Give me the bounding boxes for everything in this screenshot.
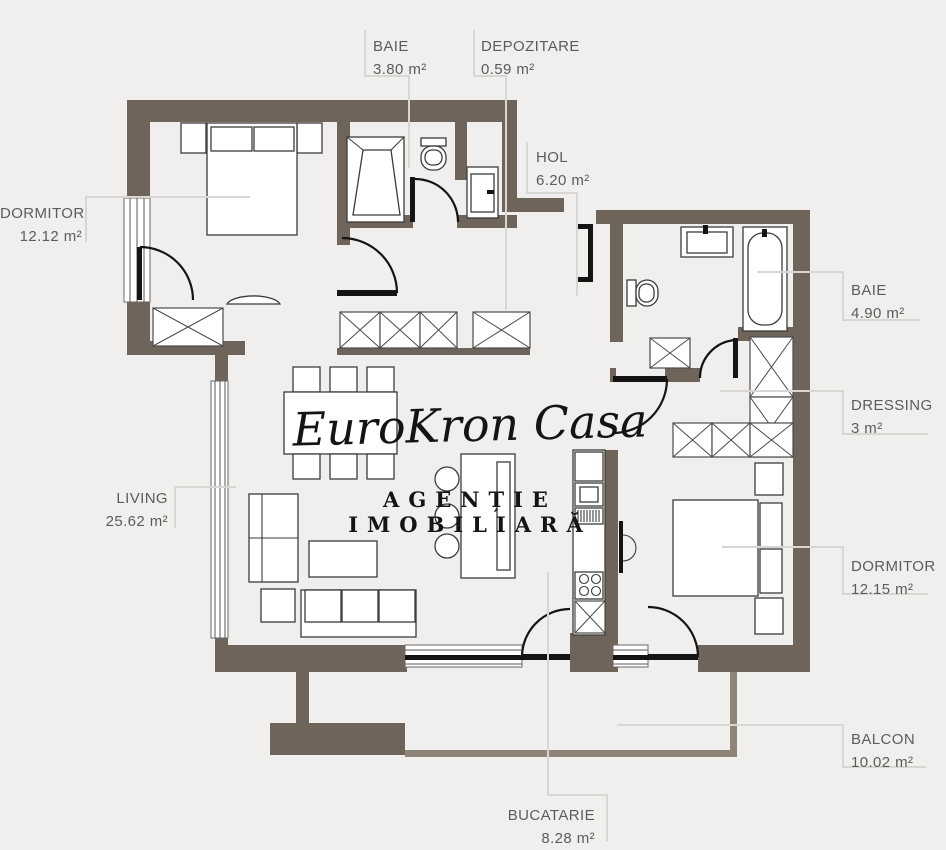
bedroom-right-furniture	[619, 463, 783, 634]
room-area: 3 m²	[851, 418, 933, 441]
room-name: BUCATARIE	[445, 805, 595, 828]
room-name: DRESSING	[851, 395, 933, 418]
room-label-baie-top: BAIE 3.80 m²	[373, 36, 427, 81]
room-name: HOL	[536, 147, 590, 170]
room-name: DORMITOR	[851, 556, 936, 579]
room-label-dormitor-stanga: DORMITOR 12.12 m²	[0, 203, 82, 248]
bedroom-left-furniture	[181, 123, 322, 304]
bathroom-top-fixtures	[347, 137, 446, 222]
room-name: BALCON	[851, 729, 915, 752]
room-area: 3.80 m²	[373, 59, 427, 82]
room-label-bucatarie: BUCATARIE 8.28 m²	[445, 805, 595, 850]
floor-plan: BAIE 3.80 m² DEPOZITARE 0.59 m² HOL 6.20…	[0, 0, 946, 847]
room-area: 4.90 m²	[851, 303, 905, 326]
room-label-dressing: DRESSING 3 m²	[851, 395, 933, 440]
room-name: BAIE	[373, 36, 427, 59]
room-label-hol: HOL 6.20 m²	[536, 147, 590, 192]
living-furniture	[249, 367, 416, 637]
room-area: 12.15 m²	[851, 579, 936, 602]
storage-cabinet	[467, 167, 498, 218]
room-name: DORMITOR	[0, 203, 82, 226]
room-area: 6.20 m²	[536, 170, 590, 193]
floor-plan-drawing	[0, 0, 946, 847]
balcony-parapet	[405, 672, 737, 757]
room-label-depozitare: DEPOZITARE 0.59 m²	[481, 36, 580, 81]
room-area: 0.59 m²	[481, 59, 580, 82]
room-area: 12.12 m²	[0, 226, 82, 249]
room-area: 25.62 m²	[0, 511, 168, 534]
room-label-living: LIVING 25.62 m²	[0, 488, 168, 533]
bathroom-right-fixtures	[627, 225, 787, 331]
room-name: LIVING	[0, 488, 168, 511]
room-label-baie-dreapta: BAIE 4.90 m²	[851, 280, 905, 325]
room-label-dormitor-dreapta: DORMITOR 12.15 m²	[851, 556, 936, 601]
room-area: 10.02 m²	[851, 752, 915, 775]
room-label-balcon: BALCON 10.02 m²	[851, 729, 915, 774]
room-name: DEPOZITARE	[481, 36, 580, 59]
room-name: BAIE	[851, 280, 905, 303]
